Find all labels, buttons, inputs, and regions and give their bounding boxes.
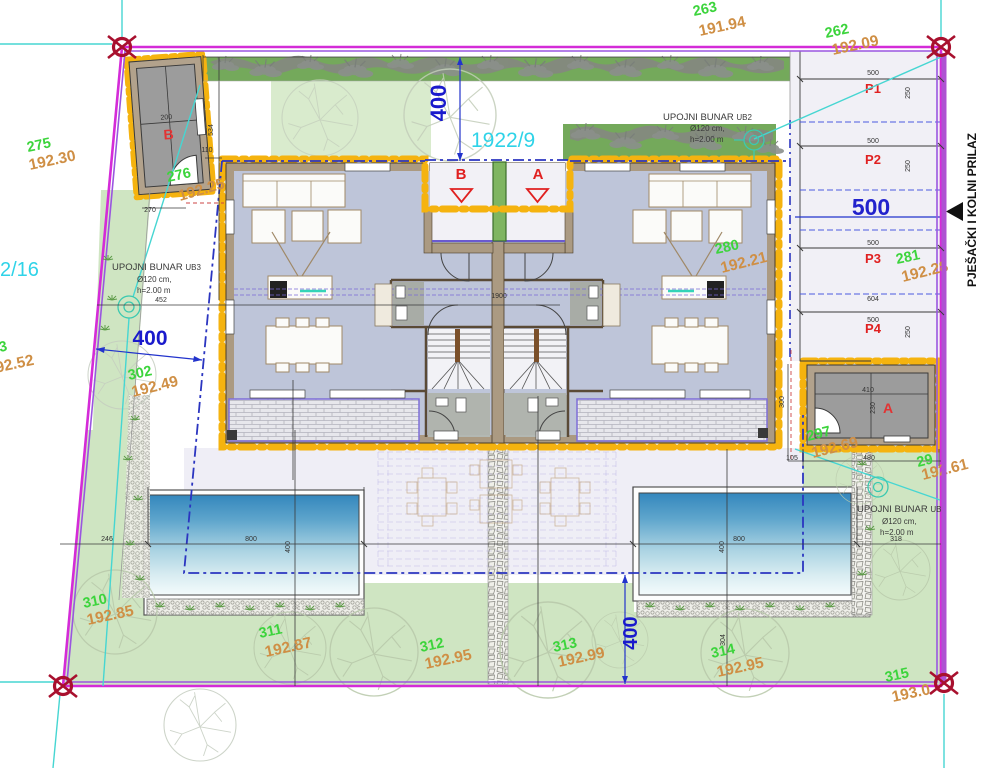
svg-text:400: 400 — [719, 541, 726, 553]
svg-text:246: 246 — [101, 536, 113, 543]
svg-text:500: 500 — [867, 70, 879, 77]
svg-text:410: 410 — [862, 387, 874, 394]
svg-text:1922/9: 1922/9 — [471, 129, 535, 152]
svg-text:500: 500 — [867, 240, 879, 247]
svg-text:318: 318 — [890, 536, 902, 543]
svg-text:110: 110 — [201, 147, 212, 154]
svg-text:2/16: 2/16 — [0, 259, 39, 281]
svg-text:P3: P3 — [865, 251, 881, 266]
svg-text:UPOJNI BUNAR UB2: UPOJNI BUNAR UB2 — [663, 112, 752, 123]
svg-text:534: 534 — [208, 124, 215, 136]
svg-text:UPOJNI BUNAR UB3: UPOJNI BUNAR UB3 — [112, 262, 201, 273]
svg-text:500: 500 — [867, 317, 879, 324]
svg-text:B: B — [456, 166, 467, 183]
svg-text:250: 250 — [905, 160, 912, 172]
svg-text:250: 250 — [905, 326, 912, 338]
svg-text:500: 500 — [867, 138, 879, 145]
svg-text:480: 480 — [863, 455, 875, 462]
svg-text:250: 250 — [905, 87, 912, 99]
svg-text:1900: 1900 — [491, 293, 507, 300]
svg-text:400: 400 — [426, 85, 451, 122]
svg-text:Ø120 cm,: Ø120 cm, — [882, 517, 917, 526]
svg-text:P2: P2 — [865, 152, 881, 167]
svg-text:A: A — [883, 400, 893, 416]
svg-text:300: 300 — [779, 396, 786, 408]
svg-text:h=2.00 m: h=2.00 m — [880, 528, 914, 537]
svg-text:400: 400 — [285, 541, 292, 553]
svg-text:B: B — [163, 126, 174, 143]
svg-text:PJEŠAČKI I KOLNI PRILAZ: PJEŠAČKI I KOLNI PRILAZ — [964, 133, 979, 287]
svg-text:800: 800 — [245, 536, 257, 543]
svg-text:400: 400 — [620, 616, 642, 649]
svg-text:500: 500 — [852, 194, 890, 220]
svg-text:A: A — [533, 166, 544, 183]
svg-text:UPOJNI BUNAR UB: UPOJNI BUNAR UB — [857, 504, 942, 515]
svg-text:230: 230 — [870, 402, 877, 414]
svg-text:452: 452 — [155, 297, 167, 304]
svg-text:105: 105 — [786, 455, 798, 462]
svg-text:h=2.00 m: h=2.00 m — [137, 286, 171, 295]
svg-text:270: 270 — [144, 207, 156, 214]
svg-text:200: 200 — [160, 114, 172, 122]
svg-text:604: 604 — [867, 296, 879, 303]
svg-text:Ø120 cm,: Ø120 cm, — [690, 124, 725, 133]
svg-text:400: 400 — [132, 327, 167, 350]
svg-text:h=2.00 m: h=2.00 m — [690, 135, 724, 144]
svg-text:Ø120 cm,: Ø120 cm, — [137, 275, 172, 284]
svg-text:800: 800 — [733, 536, 745, 543]
